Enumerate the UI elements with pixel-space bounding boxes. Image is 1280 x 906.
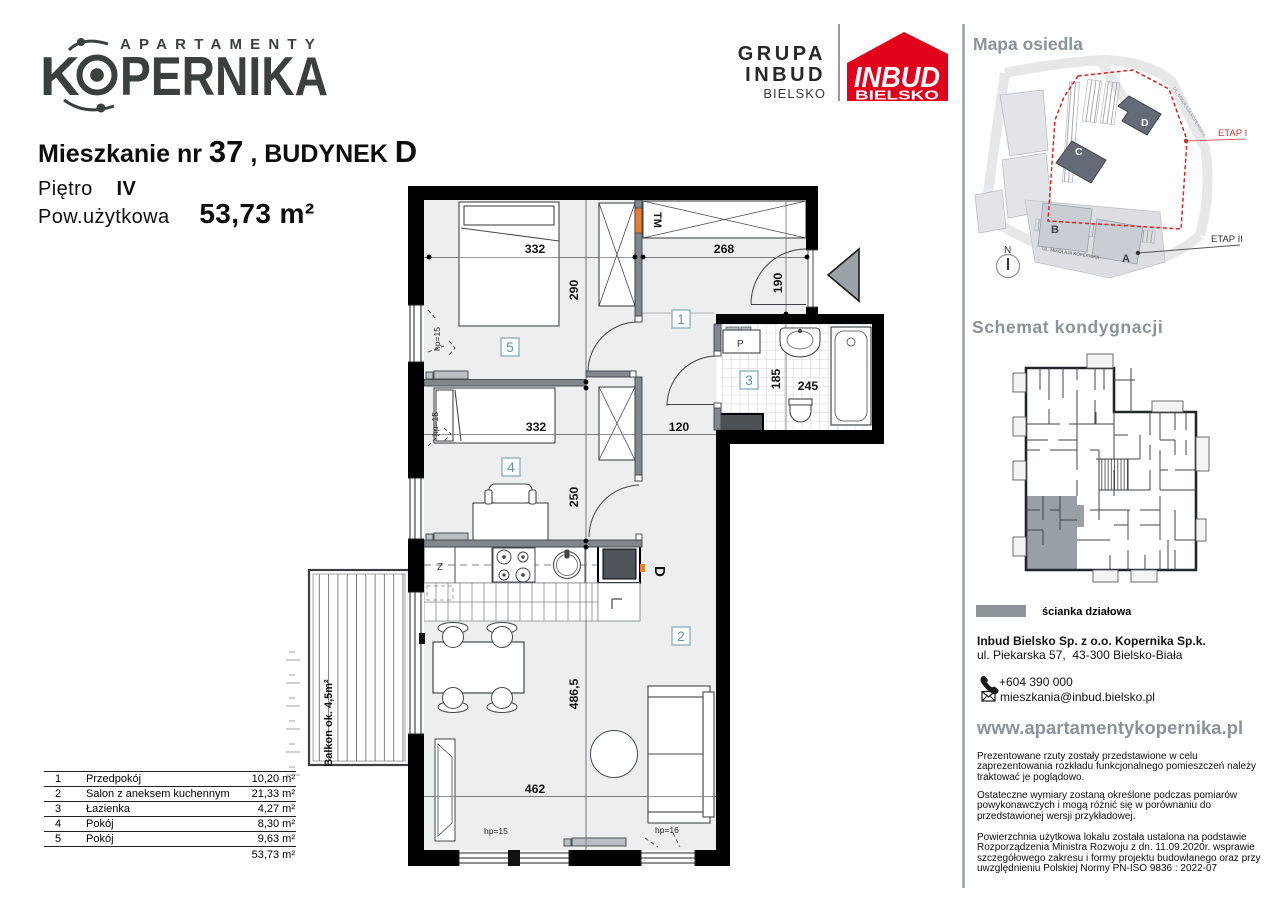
- svg-text:332: 332: [526, 420, 547, 434]
- svg-text:120: 120: [669, 420, 690, 434]
- svg-text:ETAP II: ETAP II: [1211, 234, 1243, 245]
- svg-text:245: 245: [798, 379, 819, 393]
- svg-text:3: 3: [745, 373, 753, 388]
- svg-text:5: 5: [506, 340, 514, 355]
- svg-text:hp=15: hp=15: [430, 412, 440, 436]
- svg-text:BIELSKO: BIELSKO: [855, 88, 939, 103]
- svg-text:185: 185: [769, 369, 783, 390]
- svg-text:332: 332: [525, 242, 546, 256]
- svg-text:Balkon ok. 4,5m²: Balkon ok. 4,5m²: [323, 679, 335, 767]
- svg-text:250: 250: [567, 487, 581, 508]
- svg-text:ETAP I: ETAP I: [1218, 128, 1247, 139]
- svg-text:190: 190: [771, 273, 785, 294]
- svg-text:2: 2: [677, 629, 685, 644]
- svg-text:PERNIKA: PERNIKA: [120, 45, 328, 107]
- svg-text:C: C: [1075, 146, 1083, 158]
- svg-text:N: N: [1004, 245, 1011, 256]
- svg-text:A: A: [1122, 253, 1130, 265]
- svg-text:486,5: 486,5: [567, 678, 581, 709]
- svg-text:hp=15: hp=15: [432, 327, 442, 351]
- svg-text:462: 462: [525, 782, 546, 796]
- svg-text:B: B: [1051, 224, 1059, 236]
- svg-text:268: 268: [714, 242, 735, 256]
- svg-text:hp=15: hp=15: [484, 826, 508, 836]
- svg-text:4: 4: [507, 460, 515, 475]
- svg-text:K: K: [40, 45, 80, 107]
- svg-text:D: D: [1141, 117, 1149, 129]
- svg-text:P: P: [737, 339, 744, 350]
- svg-text:Z: Z: [437, 562, 443, 573]
- svg-text:D: D: [651, 566, 668, 577]
- svg-text:TM: TM: [651, 212, 663, 228]
- svg-text:1: 1: [677, 312, 685, 327]
- svg-text:hp=16: hp=16: [655, 825, 679, 835]
- svg-text:290: 290: [567, 280, 581, 301]
